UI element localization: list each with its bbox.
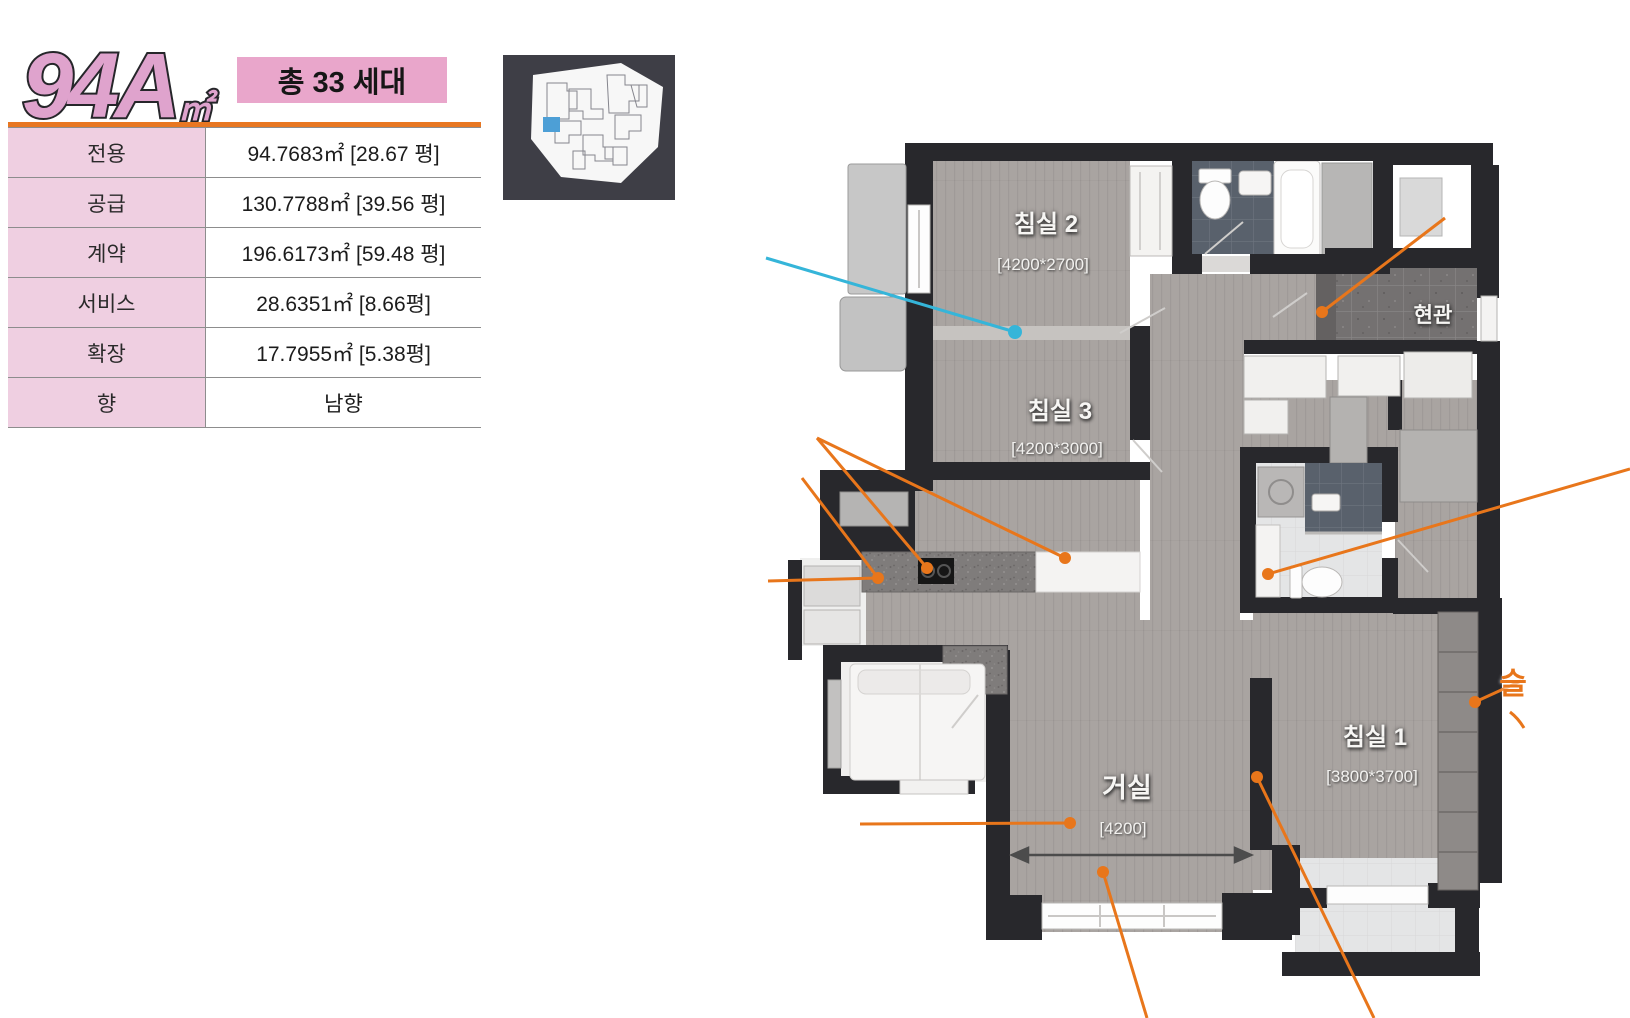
front-door [1481,296,1497,341]
room-label-bedroom1: 침실 1 [1343,724,1407,751]
room-dim-bedroom1: [3800*3700] [1326,767,1418,786]
sink-icon [1239,171,1271,195]
hall-cabinet [1330,397,1367,463]
kitchen-window [840,492,908,526]
refrigerator-icon [804,566,860,606]
toilet-icon [1200,181,1230,219]
room-dim-bedroom3: [4200*3000] [1011,439,1103,458]
shoe-closet [1338,356,1400,396]
sliding-partition [933,326,1130,340]
room-label-bedroom3: 침실 3 [1028,398,1092,425]
bedroom2-closet [1130,166,1172,256]
bedroom1-window [1327,886,1428,904]
room-label-bedroom2: 침실 2 [1014,211,1078,238]
hall-closet [1244,356,1326,398]
exterior-units [840,164,906,371]
toilet-icon [1302,567,1342,597]
clipped-annotation-stroke [1510,712,1524,728]
room-label-living: 거실 [1102,773,1152,803]
kitchen-island [1036,552,1140,592]
washer-icon [1258,467,1304,517]
room-dim-bedroom2: [4200*2700] [997,255,1089,274]
bathroom1-threshold [1202,256,1250,272]
hallway-floor [1150,344,1244,480]
bathroom1 [1192,161,1372,263]
bathtub-inner [1281,170,1313,248]
room-label-entrance: 현관 [1414,304,1453,327]
niche-unit [1400,178,1442,236]
sink-icon [1312,494,1340,511]
dressing-cabinet [1400,430,1477,502]
room-dim-living: [4200] [1099,819,1146,838]
toilet-tank [1290,566,1302,598]
bench-icon [900,780,968,794]
shoe-closet [1404,352,1472,398]
room-entrance-floor [1336,268,1477,340]
ac-unit-box [840,297,906,371]
ac-unit-box [848,164,906,294]
bath-cabinet [1256,525,1280,597]
corridor-floor [1150,480,1240,620]
small-room-window [828,680,841,768]
bedroom1-wardrobe [1438,612,1478,890]
pillow-icon [858,670,970,694]
floor-plan: 침실 2 [4200*2700] 침실 3 [4200*3000] 침실 1 [… [0,0,1630,1018]
wardrobe-icon [1438,612,1478,890]
clipped-annotation-text: 슬 [1499,668,1527,701]
room-bedroom2-floor [933,161,1130,326]
pantry-cabinet [804,610,860,644]
hall-closet [1244,400,1288,434]
small-room [850,664,985,794]
hallway-floor [1150,274,1330,344]
